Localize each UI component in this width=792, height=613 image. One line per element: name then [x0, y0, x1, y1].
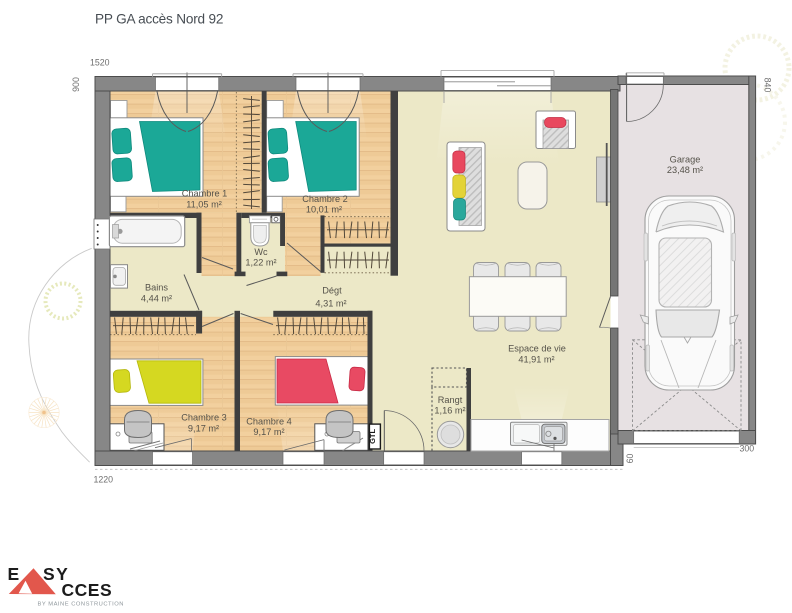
svg-text:60: 60	[625, 454, 635, 464]
svg-text:Bains: Bains	[145, 283, 168, 293]
svg-text:11,05 m²: 11,05 m²	[186, 200, 222, 210]
svg-text:9,17 m²: 9,17 m²	[188, 424, 219, 434]
svg-text:10,01 m²: 10,01 m²	[306, 205, 342, 215]
svg-text:1,22 m²: 1,22 m²	[245, 258, 276, 268]
svg-text:BY MAINE CONSTRUCTION: BY MAINE CONSTRUCTION	[38, 602, 124, 608]
svg-text:GTL: GTL	[368, 428, 377, 443]
svg-text:Chambre 2: Chambre 2	[302, 194, 347, 204]
svg-text:1,16 m²: 1,16 m²	[434, 406, 465, 416]
svg-text:Espace de vie: Espace de vie	[508, 344, 566, 354]
svg-text:4,44 m²: 4,44 m²	[141, 294, 172, 304]
svg-text:CCES: CCES	[62, 580, 113, 600]
svg-text:Chambre 1: Chambre 1	[182, 189, 227, 199]
svg-text:PP GA accès Nord 92: PP GA accès Nord 92	[95, 12, 223, 27]
svg-text:300: 300	[740, 444, 755, 454]
svg-text:9,17 m²: 9,17 m²	[253, 427, 284, 437]
svg-text:Wc: Wc	[254, 247, 268, 257]
svg-text:Garage: Garage	[670, 155, 701, 165]
svg-text:1220: 1220	[94, 475, 114, 485]
svg-text:900: 900	[71, 77, 81, 92]
svg-text:23,48 m²: 23,48 m²	[667, 165, 703, 175]
svg-text:Dégt: Dégt	[322, 286, 342, 296]
svg-text:41,91 m²: 41,91 m²	[518, 355, 554, 365]
svg-text:E: E	[8, 564, 28, 584]
svg-text:840: 840	[763, 78, 773, 93]
svg-text:Rangt: Rangt	[438, 395, 463, 405]
svg-text:4,31 m²: 4,31 m²	[315, 299, 346, 309]
svg-text:Chambre 4: Chambre 4	[246, 417, 291, 427]
svg-text:Chambre 3: Chambre 3	[181, 413, 226, 423]
svg-text:1520: 1520	[90, 58, 110, 68]
